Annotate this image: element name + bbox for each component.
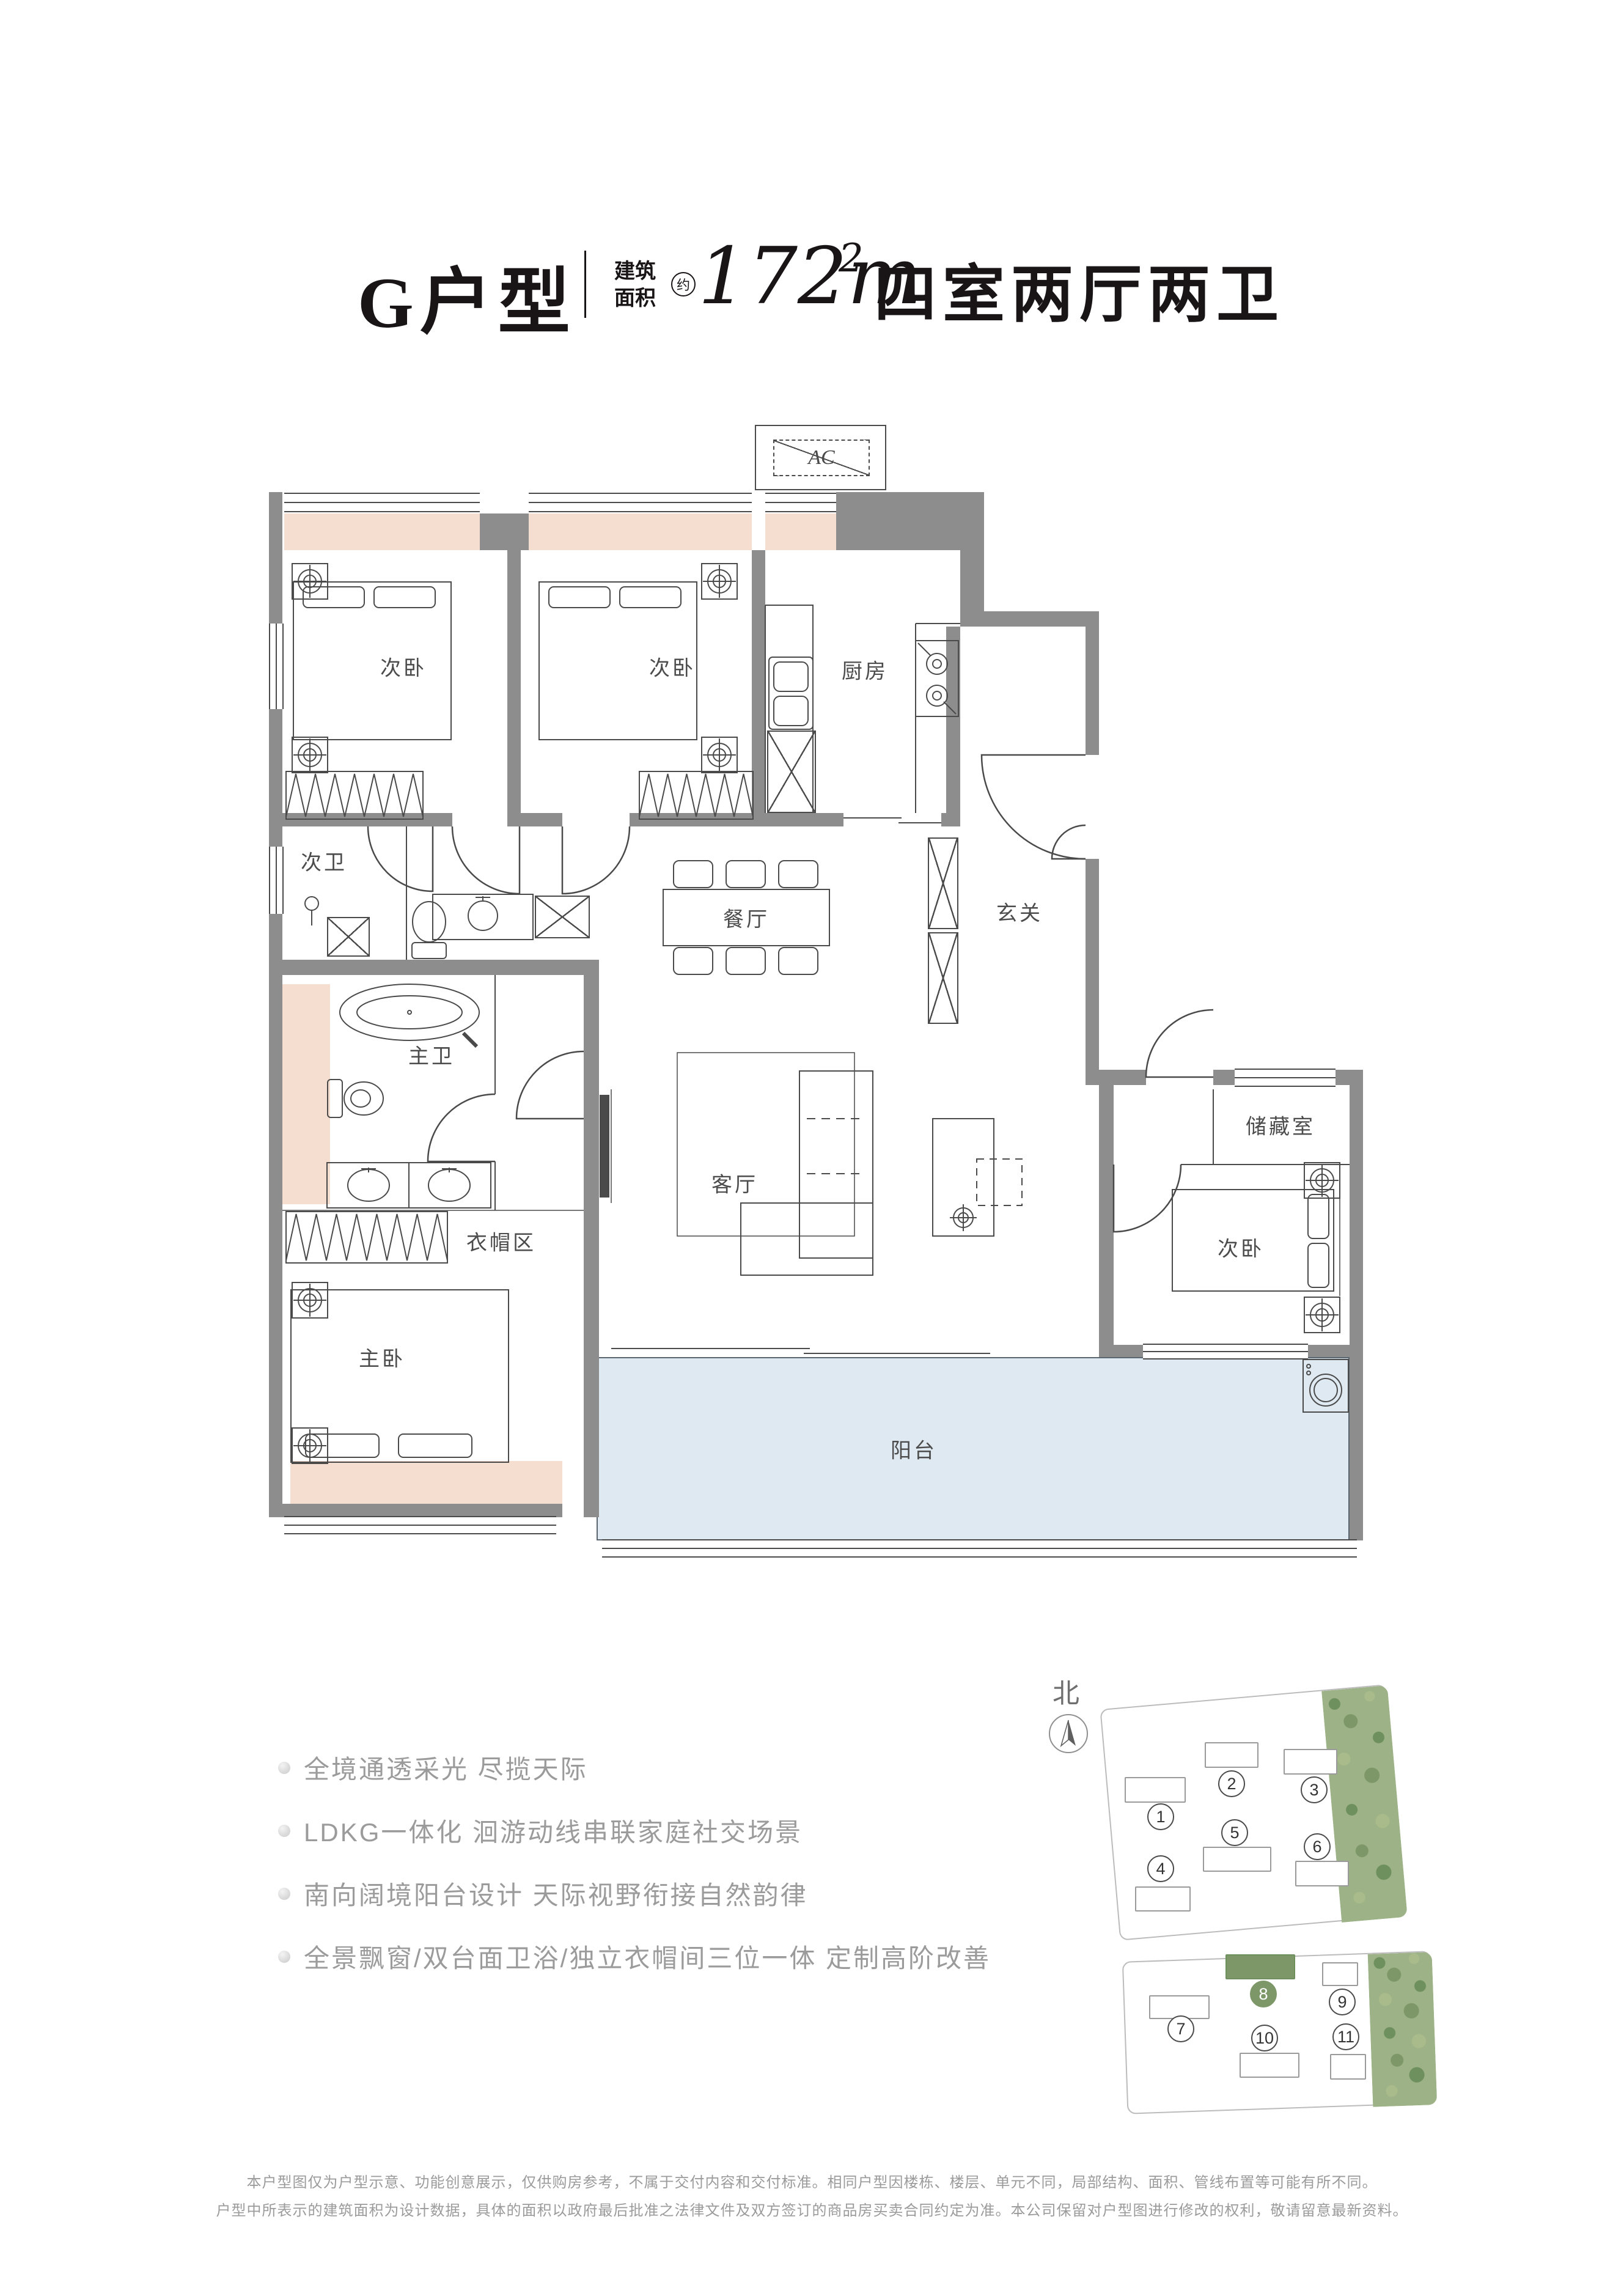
bullet-icon xyxy=(278,1888,290,1900)
building-number-11: 11 xyxy=(1332,2023,1359,2050)
site-map: 北 1 2 3 4 5 6 7 8 9 10 11 xyxy=(1033,1663,1449,2127)
feature-text: LDKG一体化 洄游动线串联家庭社交场景 xyxy=(304,1812,803,1849)
feature-list: 全境通透采光 尽揽天际 LDKG一体化 洄游动线串联家庭社交场景 南向阔境阳台设… xyxy=(278,1736,1042,1988)
area-label: 建筑 面积 xyxy=(614,258,656,312)
bullet-icon xyxy=(278,1951,290,1963)
landscape-strip xyxy=(1368,1952,1438,2107)
building-5 xyxy=(1203,1847,1271,1872)
bullet-icon xyxy=(278,1762,290,1774)
feature-text: 全景飘窗/双台面卫浴/独立衣帽间三位一体 定制高阶改善 xyxy=(304,1938,991,1975)
building-number-10: 10 xyxy=(1251,2025,1278,2051)
page-title: G户型 建筑 面积 约 172m 2 四室两厅两卫 xyxy=(0,238,1624,355)
feature-item: LDKG一体化 洄游动线串联家庭社交场景 xyxy=(278,1799,1042,1862)
bullet-icon xyxy=(278,1825,290,1837)
room-label-cloakroom: 衣帽区 xyxy=(466,1226,536,1256)
building-number-7: 7 xyxy=(1167,2015,1194,2042)
room-label-bedroom-2c: 次卧 xyxy=(1218,1232,1264,1262)
room-label-dining: 餐厅 xyxy=(718,902,774,934)
building-4 xyxy=(1135,1886,1191,1912)
floor-plan: AC xyxy=(269,422,1369,1608)
building-number-1: 1 xyxy=(1147,1803,1174,1830)
building-9 xyxy=(1322,1962,1358,1986)
feature-item: 全景飘窗/双台面卫浴/独立衣帽间三位一体 定制高阶改善 xyxy=(278,1925,1042,1988)
feature-item: 全境通透采光 尽揽天际 xyxy=(278,1736,1042,1799)
building-3 xyxy=(1284,1749,1337,1775)
compass-icon xyxy=(1049,1714,1088,1753)
feature-text: 南向阔境阳台设计 天际视野衔接自然韵律 xyxy=(304,1875,808,1912)
room-label-storage: 储藏室 xyxy=(1246,1110,1315,1140)
building-number-5: 5 xyxy=(1221,1819,1248,1846)
disclaimer-line-1: 本户型图仅为户型示意、功能创意展示，仅供购房参考，不属于交付内容和交付标准。相同… xyxy=(0,2169,1624,2197)
building-number-8: 8 xyxy=(1250,1981,1277,2007)
landscape-strip xyxy=(1321,1685,1408,1923)
room-label-bedroom-2a: 次卧 xyxy=(380,652,427,682)
furniture-layer xyxy=(269,422,1369,1608)
area-label-top: 建筑 xyxy=(614,258,656,285)
room-label-balcony: 阳台 xyxy=(891,1434,937,1464)
rooms-summary: 四室两厅两卫 xyxy=(874,245,1285,334)
building-number-9: 9 xyxy=(1329,1989,1356,2015)
title-divider xyxy=(584,251,586,318)
area-exponent: 2 xyxy=(839,236,864,281)
feature-text: 全境通透采光 尽揽天际 xyxy=(304,1749,588,1786)
disclaimer: 本户型图仅为户型示意、功能创意展示，仅供购房参考，不属于交付内容和交付标准。相同… xyxy=(0,2169,1624,2225)
unit-type-name: G户型 xyxy=(358,243,576,348)
room-label-bedroom-2b: 次卧 xyxy=(649,652,696,682)
building-10 xyxy=(1240,2053,1299,2078)
disclaimer-line-2: 户型中所表示的建筑面积为设计数据，具体的面积以政府最后批准之法律文件及双方签订的… xyxy=(0,2197,1624,2225)
feature-item: 南向阔境阳台设计 天际视野衔接自然韵律 xyxy=(278,1862,1042,1925)
area-label-bottom: 面积 xyxy=(614,285,656,312)
room-label-entry: 玄关 xyxy=(996,897,1043,927)
room-label-kitchen: 厨房 xyxy=(842,655,888,685)
building-11 xyxy=(1330,2054,1366,2080)
room-label-master-bath: 主卫 xyxy=(408,1040,455,1070)
building-2 xyxy=(1205,1742,1258,1768)
building-number-6: 6 xyxy=(1304,1833,1331,1860)
building-8-highlighted xyxy=(1225,1954,1295,1979)
building-number-4: 4 xyxy=(1147,1855,1174,1882)
building-1 xyxy=(1125,1777,1186,1803)
building-6 xyxy=(1295,1861,1349,1886)
building-number-3: 3 xyxy=(1301,1776,1328,1803)
room-label-master-bedroom: 主卧 xyxy=(359,1342,405,1372)
north-label: 北 xyxy=(1053,1671,1081,1710)
approx-badge: 约 xyxy=(671,272,696,296)
building-number-2: 2 xyxy=(1218,1770,1245,1797)
room-label-bathroom-2: 次卫 xyxy=(301,846,347,876)
room-label-living: 客厅 xyxy=(707,1167,763,1199)
